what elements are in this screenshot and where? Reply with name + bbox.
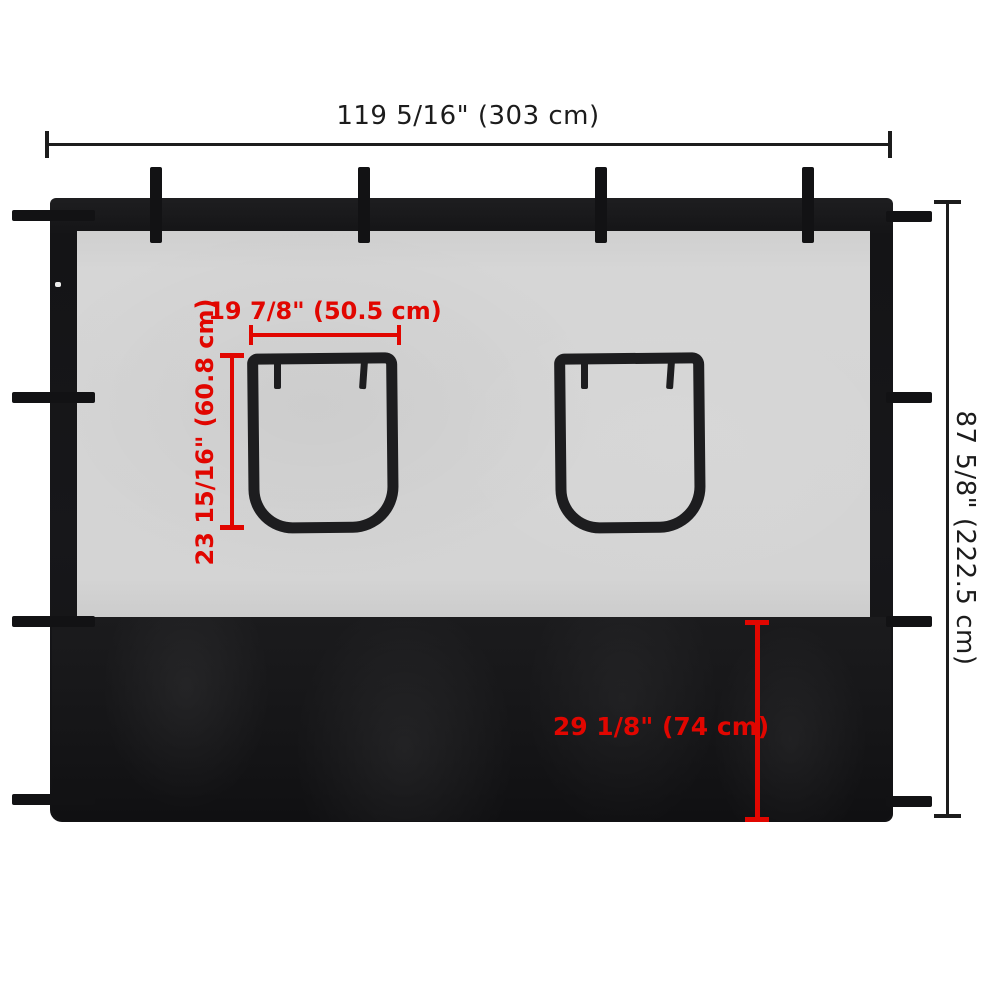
window-left-frame [247, 352, 399, 534]
window-right-toggle-1 [581, 361, 588, 389]
left-strap-3 [12, 616, 95, 627]
window-width-label: 19 7/8" (50.5 cm) [125, 297, 525, 325]
window-left-toggle-1 [274, 361, 281, 389]
overall-height-label: 87 5/8" (222.5 cm) [951, 238, 979, 838]
window-height-dimension-line [230, 355, 234, 528]
left-strap-1 [12, 210, 95, 221]
right-strap-4 [886, 796, 932, 807]
product-dimension-diagram: 119 5/16" (303 cm) 87 5/8" (222.5 cm) 19… [0, 0, 1000, 1000]
window-height-label: 23 15/16" (60.8 cm) [191, 232, 219, 632]
grommet-dot [55, 282, 61, 287]
top-strap-2 [358, 167, 370, 243]
right-strap-3 [886, 616, 932, 627]
top-strap-4 [802, 167, 814, 243]
overall-width-label: 119 5/16" (303 cm) [168, 102, 768, 130]
right-strap-2 [886, 392, 932, 403]
skirt-height-label: 29 1/8" (74 cm) [461, 713, 861, 741]
overall-height-dimension-line [946, 202, 949, 816]
left-strap-4 [12, 794, 95, 805]
top-strap-1 [150, 167, 162, 243]
right-strap-1 [886, 211, 932, 222]
left-strap-2 [12, 392, 95, 403]
window-width-dimension-line [250, 333, 400, 337]
window-right-frame [554, 352, 706, 534]
top-strap-3 [595, 167, 607, 243]
overall-width-dimension-line [47, 143, 890, 146]
